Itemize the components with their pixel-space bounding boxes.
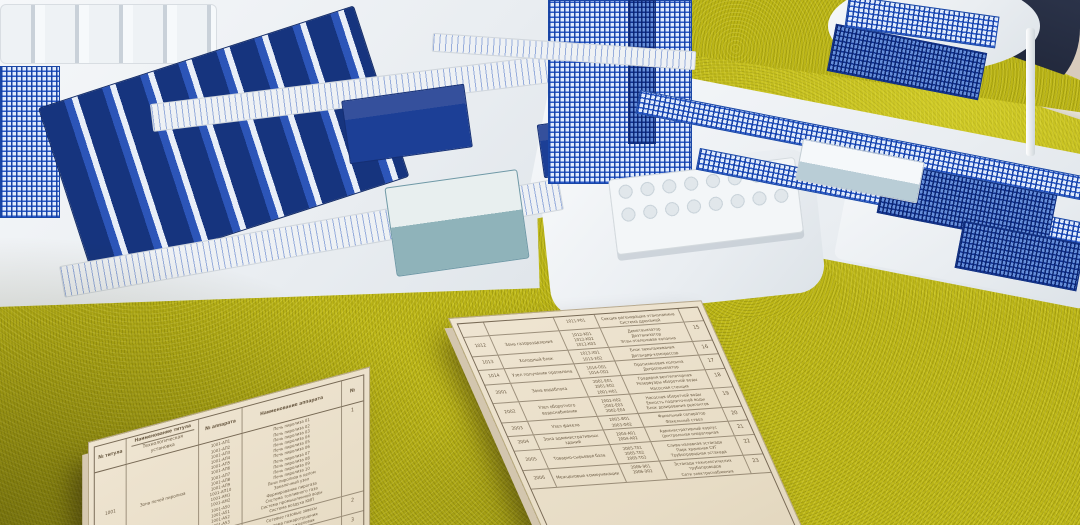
plaque-cell: 1001 bbox=[95, 465, 127, 525]
pyrolysis-tower-cluster bbox=[548, 0, 692, 184]
plaque-cell: 1001-АП1 1001-АП2 1001-АП3 1001-АП4 1001… bbox=[199, 434, 242, 525]
plaque-cell: 1 bbox=[342, 401, 363, 496]
storage-tanks-row bbox=[0, 4, 217, 64]
plaque-cell: Межцеховые коммуникации bbox=[550, 464, 627, 487]
photo-viewport: № титула Наименование титула Технологиче… bbox=[0, 0, 1080, 525]
plaque-cell: 2004-А01 2004-А02 bbox=[604, 428, 651, 444]
flare-stack bbox=[1026, 28, 1035, 156]
crane-lattice-tower bbox=[628, 0, 656, 144]
